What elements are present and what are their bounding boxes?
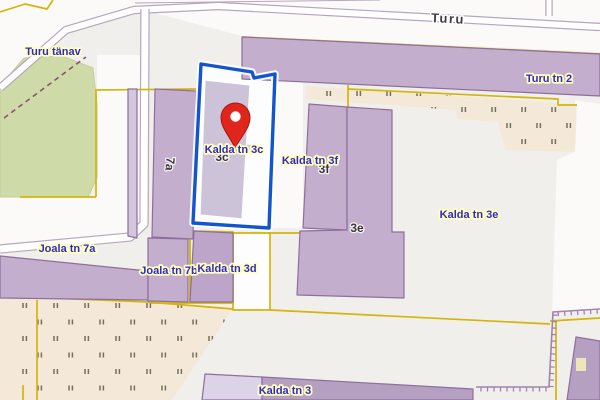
label-house-3e: 3e <box>350 221 364 235</box>
building-strip-west <box>128 89 137 238</box>
map-canvas[interactable]: 3c3f3e7aTuruTuru tänavTuru tn 2Kalda tn … <box>0 0 600 400</box>
label-addr-turu-tanav: Turu tänav <box>25 46 81 58</box>
label-addr-turu-tn-2: Turu tn 2 <box>526 73 572 85</box>
label-addr-kalda-tn-3d: Kalda tn 3d <box>197 263 256 275</box>
pin-hole <box>230 111 240 121</box>
label-street-turu: Turu <box>431 10 466 27</box>
label-addr-joala-tn-7b: Joala tn 7b <box>140 265 198 277</box>
label-addr-kalda-tn-3e: Kalda tn 3e <box>440 209 499 221</box>
label-addr-kalda-tn-3: Kalda tn 3 <box>259 385 312 397</box>
map-viewport[interactable]: 3c3f3e7aTuruTuru tänavTuru tn 2Kalda tn … <box>0 0 600 400</box>
label-house-7a: 7a <box>162 157 177 172</box>
clipped-label-halo <box>576 358 586 371</box>
building-kalda-3-light <box>202 374 262 400</box>
label-addr-kalda-tn-3f: Kalda tn 3f <box>282 155 339 167</box>
label-addr-joala-tn-7a: Joala tn 7a <box>39 243 97 255</box>
label-addr-kalda-tn-3c: Kalda tn 3c <box>205 144 264 156</box>
